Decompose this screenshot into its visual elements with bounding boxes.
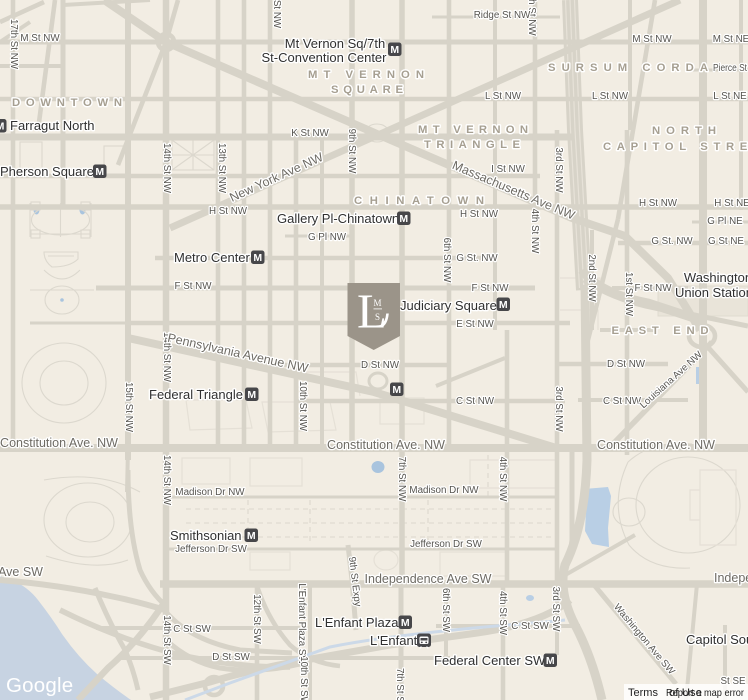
svg-text:L'Enfant Plaza SW: L'Enfant Plaza SW	[296, 583, 307, 665]
svg-text:3rd St NW: 3rd St NW	[553, 386, 564, 432]
svg-text:Madison Dr NW: Madison Dr NW	[175, 487, 245, 498]
svg-text:Judiciary Square: Judiciary Square	[400, 298, 497, 313]
svg-text:D St SW: D St SW	[212, 652, 250, 663]
svg-text:MT VERNON: MT VERNON	[308, 69, 424, 81]
svg-text:Jefferson Dr SW: Jefferson Dr SW	[175, 544, 247, 555]
svg-text:L'Enfant Plaza: L'Enfant Plaza	[315, 615, 399, 630]
svg-text:3rd St SW: 3rd St SW	[550, 587, 561, 632]
svg-text:M: M	[390, 44, 399, 56]
svg-text:Gallery Pl-Chinatown: Gallery Pl-Chinatown	[277, 211, 399, 226]
svg-text:e Ave SW: e Ave SW	[0, 565, 43, 579]
svg-text:Pherson Square: Pherson Square	[0, 164, 94, 179]
svg-text:M: M	[0, 121, 5, 133]
svg-text:M: M	[247, 530, 256, 542]
svg-text:F St NW: F St NW	[174, 281, 212, 292]
svg-text:6th St NW: 6th St NW	[441, 238, 452, 283]
svg-text:2nd St NW: 2nd St NW	[586, 254, 597, 302]
svg-text:7th St NW: 7th St NW	[396, 457, 407, 502]
svg-text:M: M	[95, 166, 104, 178]
svg-text:G Pl NE: G Pl NE	[707, 216, 743, 227]
svg-text:4th St SW: 4th St SW	[497, 591, 508, 636]
svg-text:7th St SW: 7th St SW	[394, 668, 405, 700]
svg-text:L'Enfant: L'Enfant	[370, 633, 418, 648]
svg-text:13th St NW: 13th St NW	[216, 143, 227, 194]
svg-text:M: M	[399, 213, 408, 225]
svg-text:I St NW: I St NW	[491, 164, 525, 175]
svg-text:Constitution Ave. NW: Constitution Ave. NW	[327, 438, 445, 452]
svg-text:G St. NW: G St. NW	[456, 253, 498, 264]
svg-text:Federal Center SW: Federal Center SW	[434, 653, 546, 668]
svg-text:L St NW: L St NW	[485, 91, 522, 102]
svg-text:14th St NW: 14th St NW	[161, 455, 172, 506]
svg-text:M: M	[247, 389, 256, 401]
svg-text:Pierce St: Pierce St	[713, 63, 747, 74]
svg-text:Independence Ave SW: Independence Ave SW	[365, 572, 492, 586]
svg-text:K St NW: K St NW	[291, 128, 329, 139]
svg-text:9th St NW: 9th St NW	[346, 129, 357, 174]
svg-text:Mt Vernon Sq/7th: Mt Vernon Sq/7th	[285, 36, 385, 51]
svg-text:CHINATOWN: CHINATOWN	[354, 195, 484, 207]
svg-text:Indepe: Indepe	[714, 571, 748, 585]
svg-text:Capitol Sou: Capitol Sou	[686, 632, 748, 647]
svg-text:M: M	[401, 617, 410, 629]
svg-text:St-Convention Center: St-Convention Center	[261, 50, 387, 65]
svg-text:4th St NW: 4th St NW	[497, 457, 508, 502]
svg-text:St NW: St NW	[271, 0, 282, 29]
svg-text:M: M	[546, 655, 555, 667]
svg-text:M: M	[392, 384, 401, 396]
svg-text:Smithsonian: Smithsonian	[170, 528, 242, 543]
svg-text:3rd St NW: 3rd St NW	[553, 147, 564, 193]
svg-text:M: M	[373, 298, 381, 308]
svg-text:12th St SW: 12th St SW	[251, 594, 262, 644]
svg-text:10th St NW: 10th St NW	[297, 381, 308, 432]
svg-text:Union Station: Union Station	[675, 285, 748, 300]
svg-text:H St NW: H St NW	[639, 198, 678, 209]
svg-text:14th St NW: 14th St NW	[161, 143, 172, 194]
svg-text:MT VERNON: MT VERNON	[418, 124, 528, 136]
svg-text:F St NW: F St NW	[471, 283, 509, 294]
svg-text:15th St NW: 15th St NW	[123, 382, 134, 433]
svg-text:of Use: of Use	[669, 687, 702, 699]
svg-text:C St NW: C St NW	[603, 396, 642, 407]
svg-text:L: L	[357, 284, 387, 339]
svg-text:G Pl NW: G Pl NW	[308, 232, 347, 243]
svg-text:C St NW: C St NW	[456, 396, 495, 407]
svg-text:Farragut North: Farragut North	[10, 118, 95, 133]
svg-text:L St NE: L St NE	[713, 91, 747, 102]
svg-text:Federal Triangle: Federal Triangle	[149, 387, 243, 402]
svg-text:6th St SW: 6th St SW	[440, 588, 451, 633]
svg-text:H St NE: H St NE	[714, 198, 748, 209]
svg-text:1st St NW: 1st St NW	[623, 272, 634, 317]
svg-text:H St NW: H St NW	[460, 209, 499, 220]
svg-text:C St SW: C St SW	[511, 621, 549, 632]
svg-text:E St NW: E St NW	[456, 319, 494, 330]
svg-text:14th St SW: 14th St SW	[161, 615, 172, 665]
svg-text:H St NW: H St NW	[209, 206, 248, 217]
svg-text:4th St NW: 4th St NW	[529, 209, 540, 254]
svg-text:M: M	[253, 252, 262, 264]
svg-text:Metro Center: Metro Center	[174, 250, 251, 265]
svg-text:G St NE: G St NE	[708, 236, 744, 247]
svg-text:Washington: Washington	[684, 270, 748, 285]
svg-text:M St NW: M St NW	[20, 33, 60, 44]
svg-text:L St NW: L St NW	[592, 91, 629, 102]
svg-text:17th St NW: 17th St NW	[8, 19, 19, 70]
svg-text:Madison Dr NW: Madison Dr NW	[409, 485, 479, 496]
svg-text:G St. NW: G St. NW	[651, 236, 693, 247]
svg-text:Constitution Ave. NW: Constitution Ave. NW	[0, 436, 118, 450]
svg-text:S: S	[375, 312, 380, 322]
svg-text:M St NW: M St NW	[632, 34, 672, 45]
svg-text:Google: Google	[6, 674, 73, 697]
svg-text:Jefferson Dr SW: Jefferson Dr SW	[410, 539, 482, 550]
svg-text:Terms: Terms	[628, 687, 658, 699]
svg-text:C St SW: C St SW	[173, 624, 211, 635]
svg-text:M: M	[499, 299, 508, 311]
svg-text:D St NW: D St NW	[361, 360, 400, 371]
svg-text:TRIANGLE: TRIANGLE	[424, 139, 520, 151]
svg-text:Constitution Ave. NW: Constitution Ave. NW	[597, 438, 715, 452]
svg-text:10th St SW: 10th St SW	[298, 656, 309, 700]
svg-text:M St NE: M St NE	[713, 34, 748, 45]
svg-text:Ridge St NW: Ridge St NW	[474, 10, 531, 21]
svg-text:D St NW: D St NW	[607, 359, 646, 370]
svg-text:F St NW: F St NW	[634, 283, 672, 294]
